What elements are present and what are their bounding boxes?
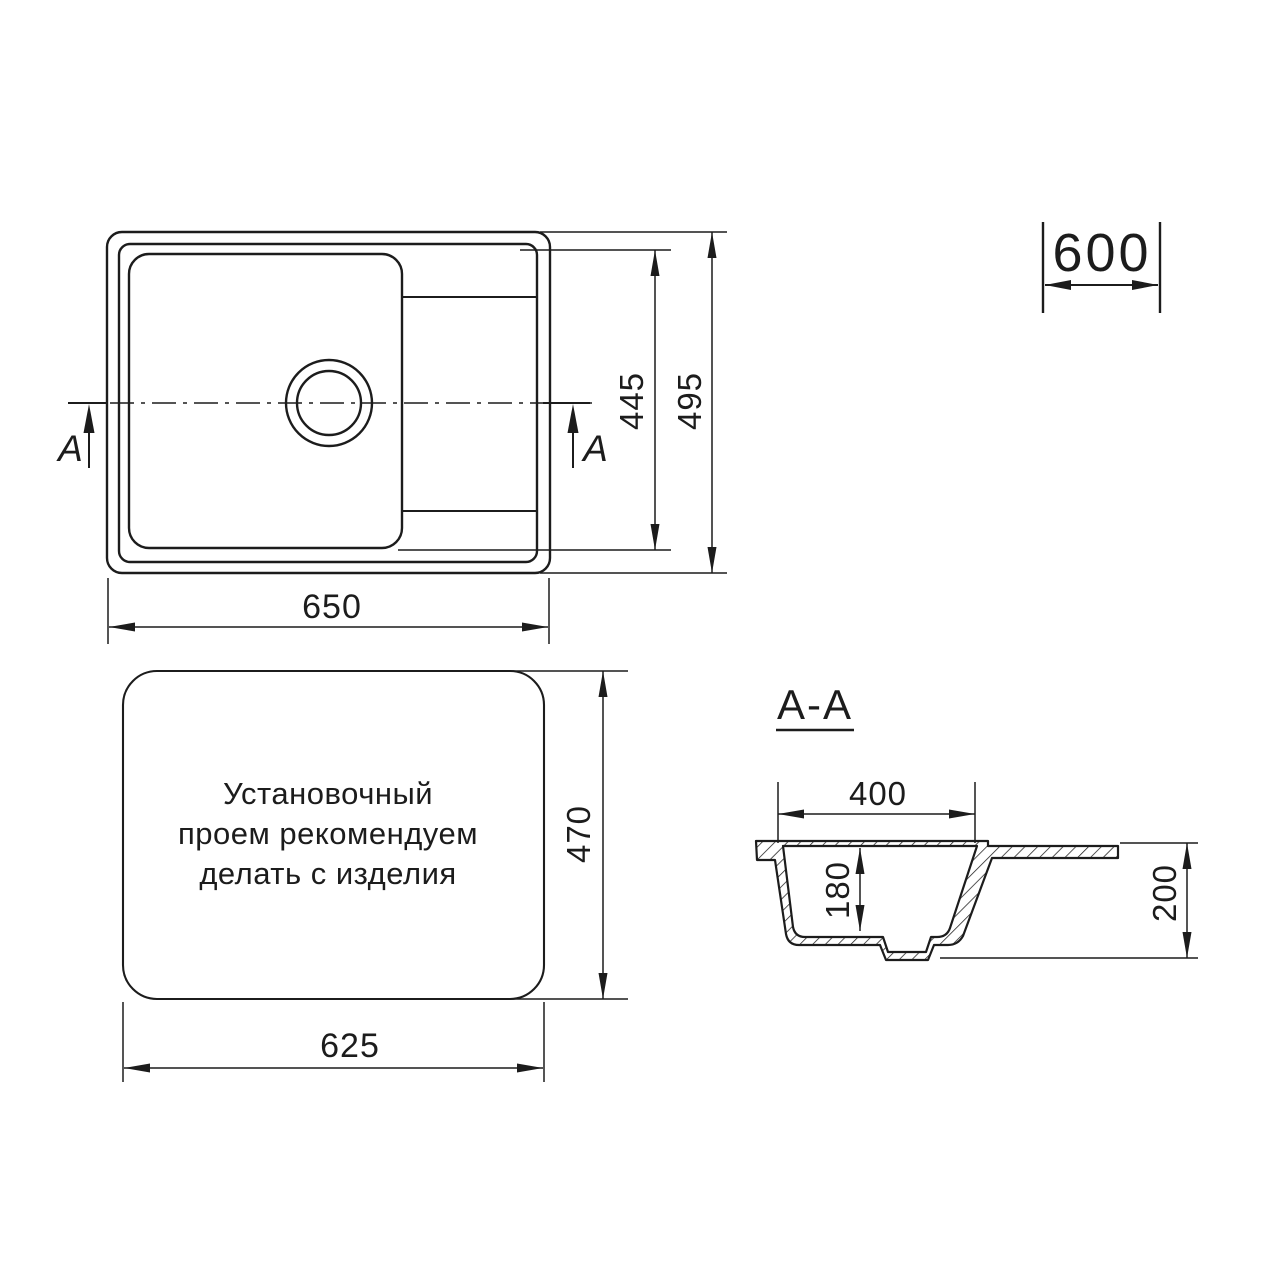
arrowhead: [949, 810, 975, 819]
arrowhead: [517, 1064, 543, 1073]
drawing-svg: A A 650 445 495 600 У: [0, 0, 1280, 1280]
dimension-650: 650: [108, 578, 549, 644]
arrowhead: [651, 250, 660, 276]
section-marker-a-right: A: [581, 428, 609, 469]
dim-625-label: 625: [320, 1027, 380, 1065]
arrowhead: [599, 671, 608, 697]
arrowhead: [599, 973, 608, 999]
arrowhead: [708, 232, 717, 258]
dimension-625: 625: [123, 1002, 544, 1082]
arrowhead: [856, 848, 865, 874]
dimension-445: 445: [398, 250, 671, 550]
dim-200-label: 200: [1146, 864, 1183, 922]
dim-495-label: 495: [671, 372, 708, 430]
dim-650-label: 650: [302, 588, 362, 626]
arrowhead: [856, 905, 865, 931]
arrowhead: [109, 623, 135, 632]
dimension-180: 180: [819, 848, 865, 931]
install-view: Установочный проем рекомендуем делать с …: [123, 671, 544, 999]
section-arrow-left-head: [84, 404, 95, 433]
sink-technical-drawing: A A 650 445 495 600 У: [0, 0, 1280, 1280]
dimension-400: 400: [778, 775, 975, 843]
arrowhead: [1183, 932, 1192, 958]
arrowhead: [522, 623, 548, 632]
dim-445-label: 445: [613, 372, 650, 430]
arrowhead: [778, 810, 804, 819]
top-view: [68, 232, 592, 573]
dimension-600: 600: [1043, 222, 1160, 313]
install-note-line1: Установочный: [223, 776, 433, 811]
dim-180-label: 180: [819, 861, 856, 919]
dimension-470: 470: [505, 671, 628, 999]
dim-600-label: 600: [1052, 223, 1151, 283]
sink-cross-section: [756, 841, 1118, 960]
section-title: A-A: [777, 681, 853, 728]
arrowhead: [1183, 843, 1192, 869]
dimension-200: 200: [1146, 843, 1192, 958]
dim-470-label: 470: [560, 805, 597, 863]
arrowhead: [651, 524, 660, 550]
section-arrow-right-head: [568, 404, 579, 433]
arrowhead: [708, 547, 717, 573]
install-note-line3: делать с изделия: [199, 856, 456, 891]
dim-400-label: 400: [849, 775, 907, 812]
install-note-line2: проем рекомендуем: [178, 816, 478, 851]
section-marker-a-left: A: [56, 428, 84, 469]
arrowhead: [124, 1064, 150, 1073]
